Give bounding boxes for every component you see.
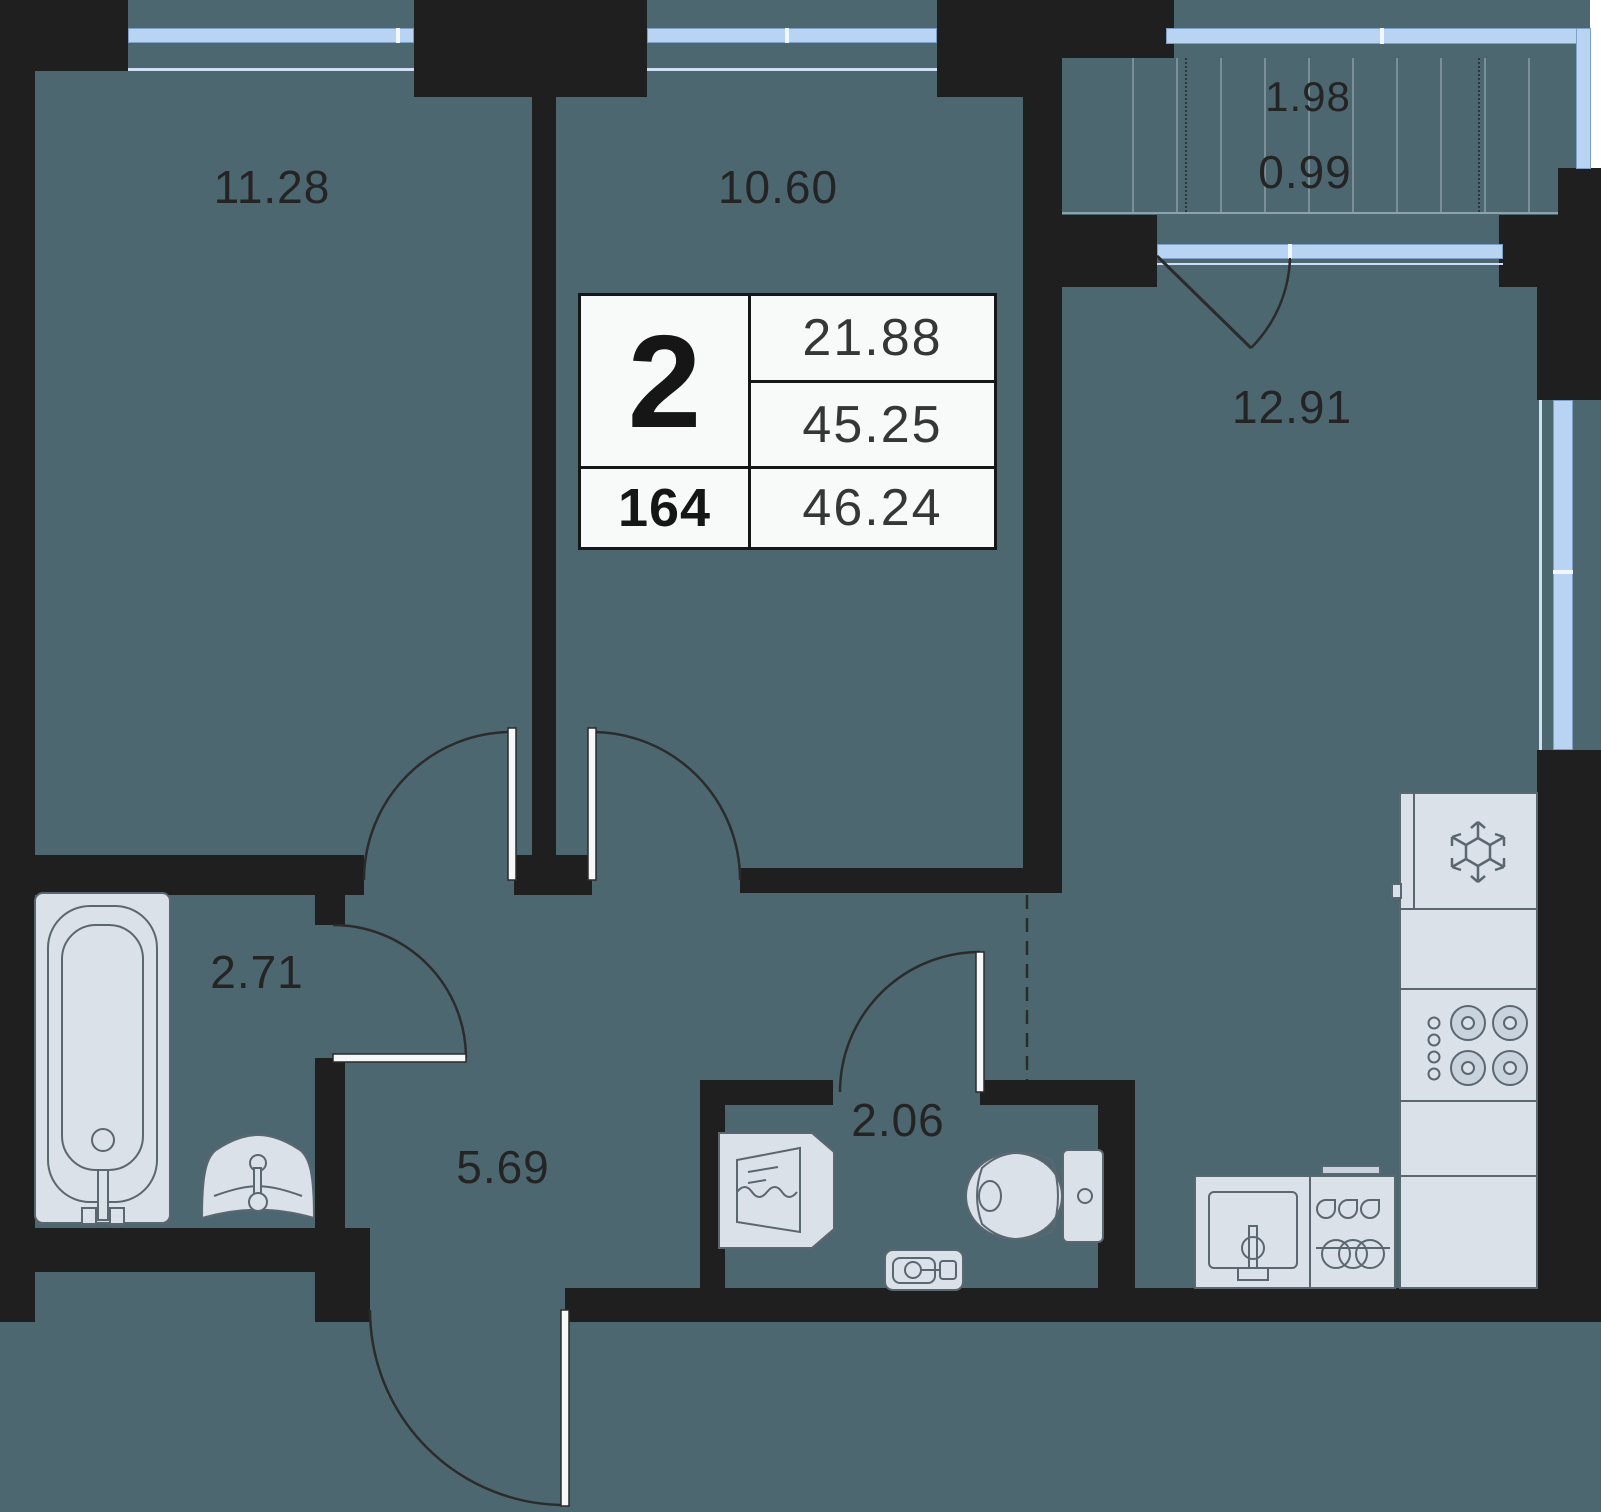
living-area: 21.88	[751, 296, 994, 380]
bathtub	[35, 893, 170, 1224]
room-label-hallway: 5.69	[456, 1140, 550, 1194]
door-balcony	[1157, 256, 1290, 348]
floor-plan: 11.28 10.60 12.91 2.71 5.69 2.06 1.98 0.…	[0, 0, 1601, 1512]
dishwasher	[1310, 1166, 1395, 1288]
room-label-wc: 2.06	[851, 1093, 945, 1147]
room-label-bathroom: 2.71	[210, 945, 304, 999]
door-room1	[364, 728, 516, 880]
door-bathroom	[333, 925, 466, 1062]
toilet	[966, 1150, 1103, 1242]
room-label-balcony: 1.98	[1265, 73, 1351, 121]
apartment-info-box: 2 164 21.88 45.25 46.24	[578, 293, 997, 550]
washing-machine	[719, 1133, 834, 1248]
plan-linework	[0, 0, 1601, 1512]
room-label-living2: 10.60	[718, 160, 838, 214]
kitchen-sink	[1195, 1176, 1310, 1288]
door-entry	[370, 1310, 569, 1506]
stove	[1400, 989, 1537, 1101]
apartment-area: 45.25	[751, 383, 994, 466]
unit-number: 164	[581, 469, 748, 547]
room-label-kitchen: 12.91	[1232, 380, 1352, 434]
room-label-balcony-coeff: 0.99	[1258, 145, 1352, 199]
floor-drain	[885, 1250, 963, 1290]
room-label-living1: 11.28	[214, 160, 331, 214]
fridge	[1392, 793, 1537, 909]
rooms-count: 2	[581, 296, 748, 466]
door-wc	[840, 952, 984, 1092]
door-room2	[588, 728, 740, 880]
bathroom-sink	[202, 1135, 314, 1218]
total-area: 46.24	[751, 469, 994, 547]
